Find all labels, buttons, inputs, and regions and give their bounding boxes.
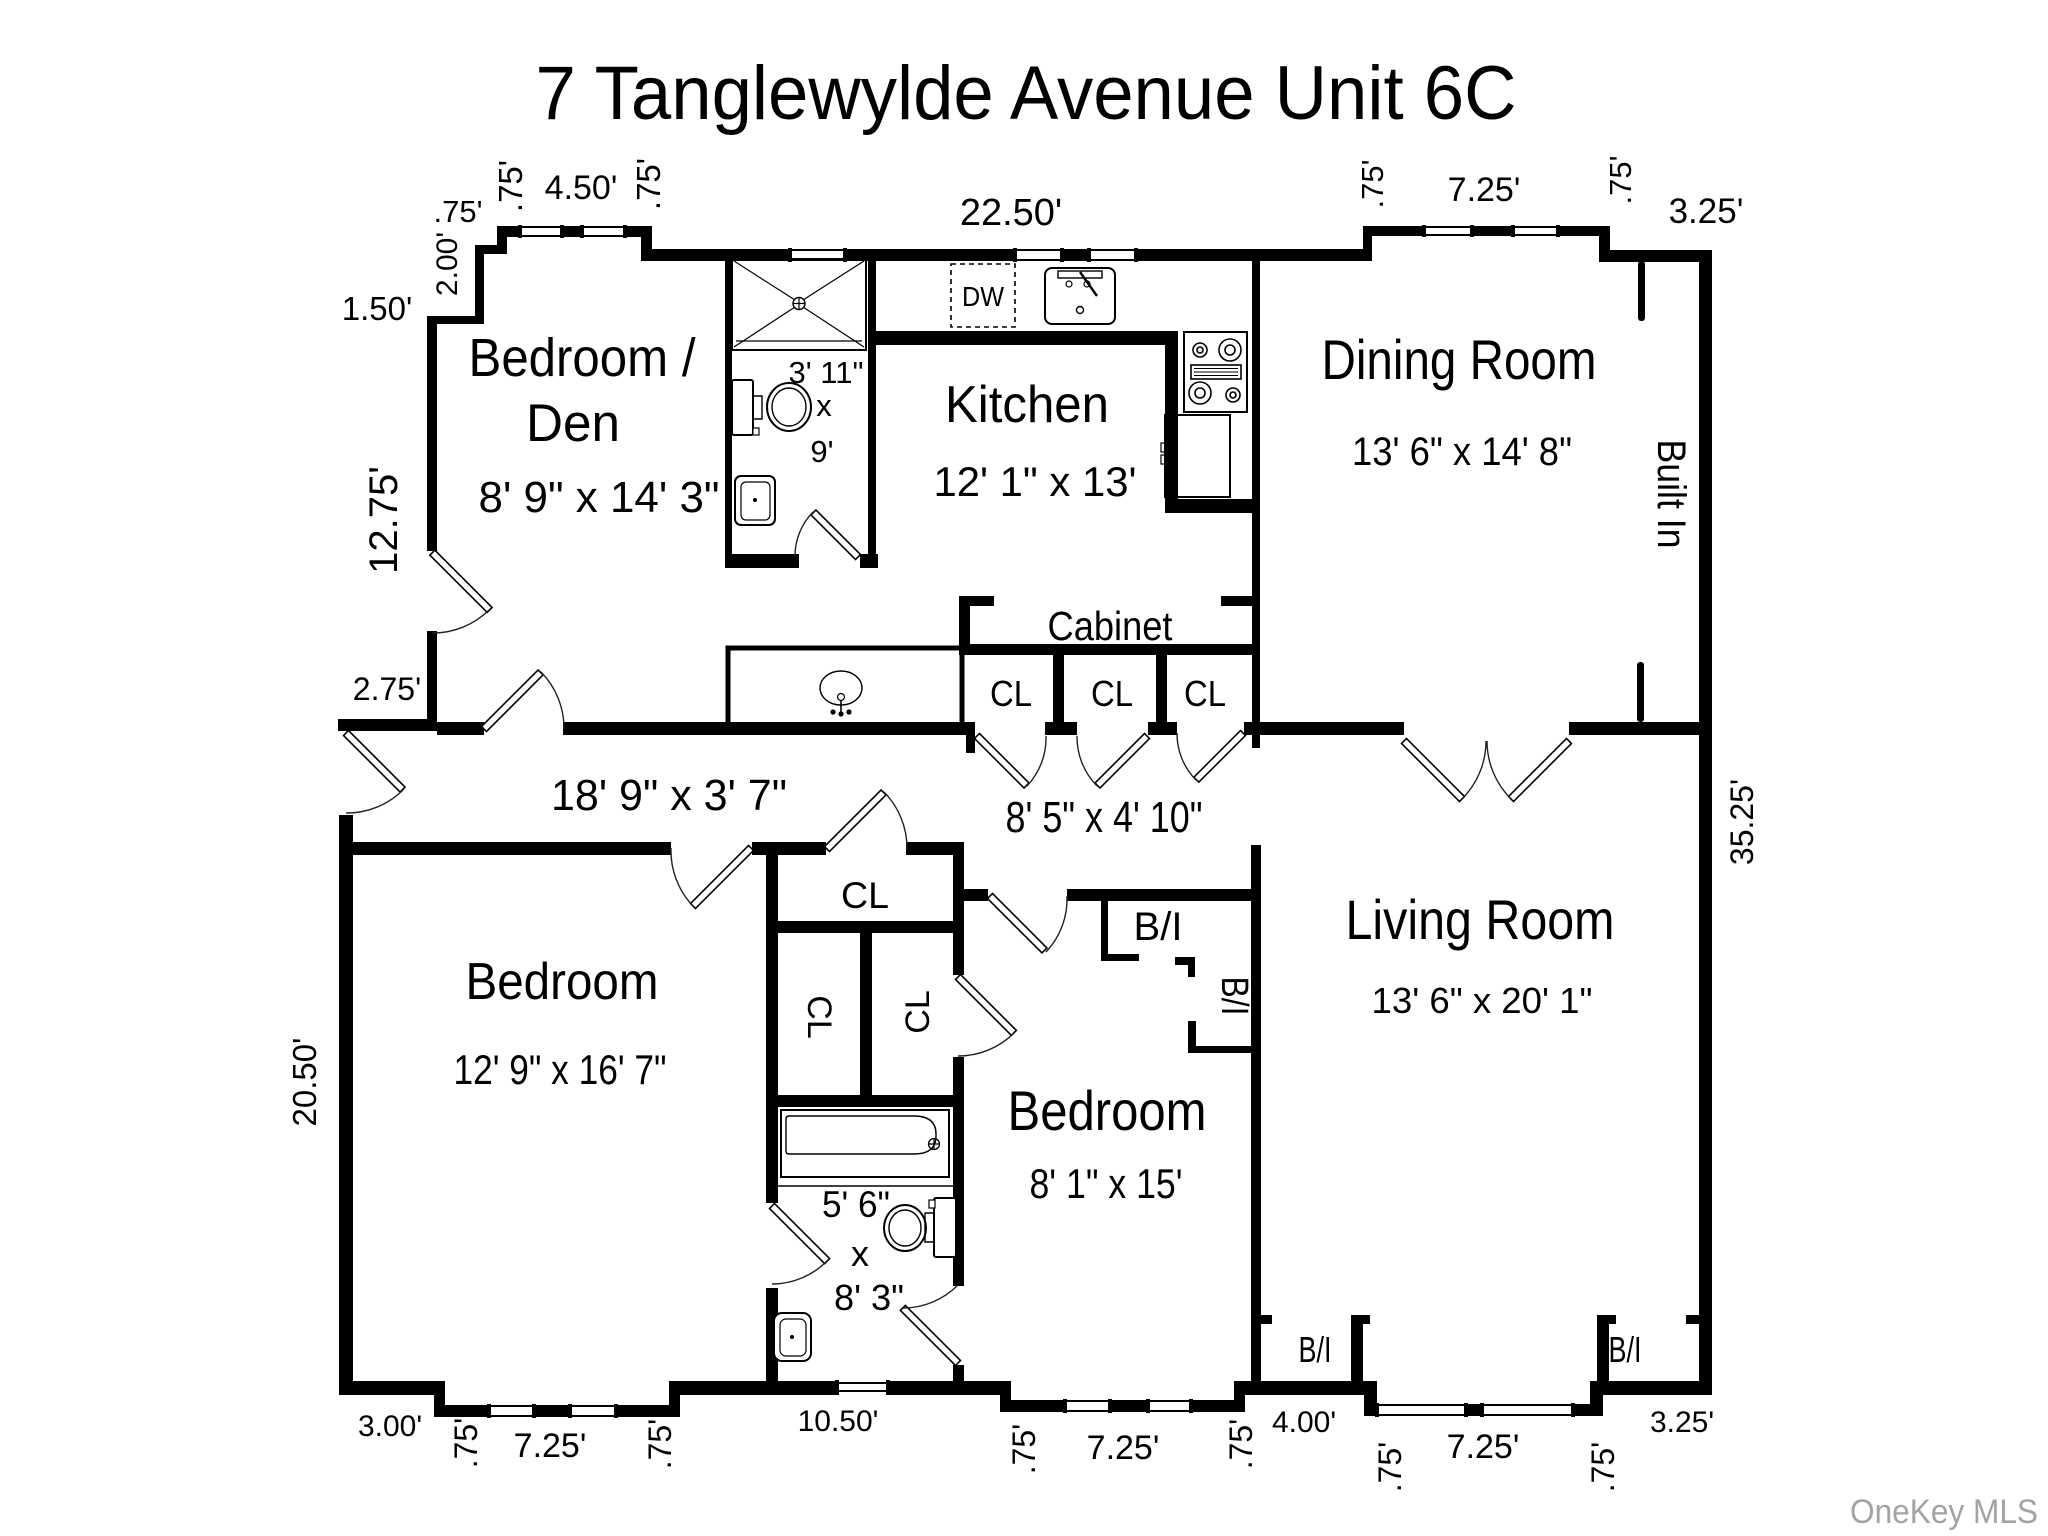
svg-text:Den: Den (526, 394, 620, 453)
svg-text:2.75': 2.75' (353, 671, 421, 707)
svg-text:9': 9' (810, 434, 833, 469)
svg-text:B/I: B/I (1134, 905, 1183, 949)
svg-text:.75': .75' (1223, 1419, 1259, 1470)
svg-text:B/I: B/I (1213, 977, 1255, 1016)
svg-text:4.50': 4.50' (545, 169, 618, 207)
svg-text:2.00': 2.00' (431, 232, 464, 296)
svg-text:Bedroom: Bedroom (1008, 1079, 1207, 1142)
svg-text:.75': .75' (433, 194, 482, 229)
svg-text:8' 3": 8' 3" (834, 1277, 904, 1318)
svg-text:Cabinet: Cabinet (1048, 603, 1174, 649)
svg-text:4.00': 4.00' (1272, 1406, 1336, 1439)
svg-text:12' 9" x 16' 7": 12' 9" x 16' 7" (454, 1046, 667, 1093)
svg-text:7.25': 7.25' (1447, 1428, 1520, 1466)
svg-text:.75': .75' (1372, 1442, 1408, 1493)
svg-text:.75': .75' (1585, 1442, 1621, 1493)
svg-text:CL: CL (1091, 673, 1133, 714)
svg-text:Dining Room: Dining Room (1322, 328, 1597, 391)
svg-text:OneKey MLS: OneKey MLS (1850, 1493, 2038, 1531)
svg-text:Kitchen: Kitchen (945, 376, 1109, 434)
svg-text:B/I: B/I (1609, 1329, 1642, 1370)
svg-text:7 Tanglewylde Avenue Unit 6C: 7 Tanglewylde Avenue Unit 6C (536, 51, 1517, 136)
svg-text:.75': .75' (448, 1418, 484, 1469)
svg-text:3.00': 3.00' (358, 1410, 422, 1443)
svg-text:13' 6" x 14' 8": 13' 6" x 14' 8" (1352, 430, 1572, 474)
svg-text:10.50': 10.50' (798, 1405, 879, 1438)
svg-text:3' 11": 3' 11" (789, 355, 864, 390)
svg-text:.75': .75' (1603, 155, 1638, 204)
svg-text:5' 6": 5' 6" (822, 1184, 890, 1225)
svg-text:DW: DW (962, 281, 1005, 312)
svg-text:3.25': 3.25' (1669, 192, 1744, 231)
svg-text:12.75': 12.75' (362, 466, 406, 574)
svg-text:.75': .75' (1006, 1424, 1042, 1475)
svg-text:7.25': 7.25' (1448, 171, 1521, 209)
svg-text:7.25': 7.25' (514, 1427, 587, 1465)
svg-text:8' 1" x 15': 8' 1" x 15' (1030, 1160, 1183, 1207)
svg-text:18' 9" x 3' 7": 18' 9" x 3' 7" (551, 771, 787, 820)
svg-text:.75': .75' (642, 1419, 678, 1470)
svg-text:Living Room: Living Room (1346, 888, 1615, 951)
svg-text:CL: CL (899, 990, 937, 1033)
svg-text:1.50': 1.50' (342, 290, 413, 327)
svg-text:CL: CL (1184, 673, 1226, 714)
svg-text:12' 1" x 13': 12' 1" x 13' (934, 458, 1137, 505)
svg-text:35.25': 35.25' (1724, 779, 1760, 865)
svg-text:3.25': 3.25' (1650, 1406, 1714, 1439)
svg-text:x: x (851, 1233, 869, 1274)
svg-text:Bedroom: Bedroom (466, 953, 659, 1011)
svg-text:22.50': 22.50' (960, 192, 1062, 234)
svg-text:Bedroom /: Bedroom / (469, 328, 696, 388)
svg-text:Built In: Built In (1649, 440, 1693, 549)
svg-text:CL: CL (990, 673, 1032, 714)
svg-text:7.25': 7.25' (1087, 1429, 1160, 1467)
svg-text:8' 5" x 4' 10": 8' 5" x 4' 10" (1006, 793, 1203, 842)
svg-text:20.50': 20.50' (286, 1038, 323, 1127)
svg-text:8' 9" x 14' 3": 8' 9" x 14' 3" (479, 473, 720, 522)
svg-text:CL: CL (800, 995, 838, 1038)
svg-text:.75': .75' (1355, 159, 1390, 208)
svg-text:.75': .75' (630, 158, 667, 210)
svg-text:B/I: B/I (1299, 1329, 1332, 1370)
svg-text:x: x (816, 388, 832, 423)
svg-text:CL: CL (841, 875, 889, 916)
svg-text:.75': .75' (492, 160, 529, 212)
svg-text:13' 6" x 20' 1": 13' 6" x 20' 1" (1372, 980, 1593, 1021)
